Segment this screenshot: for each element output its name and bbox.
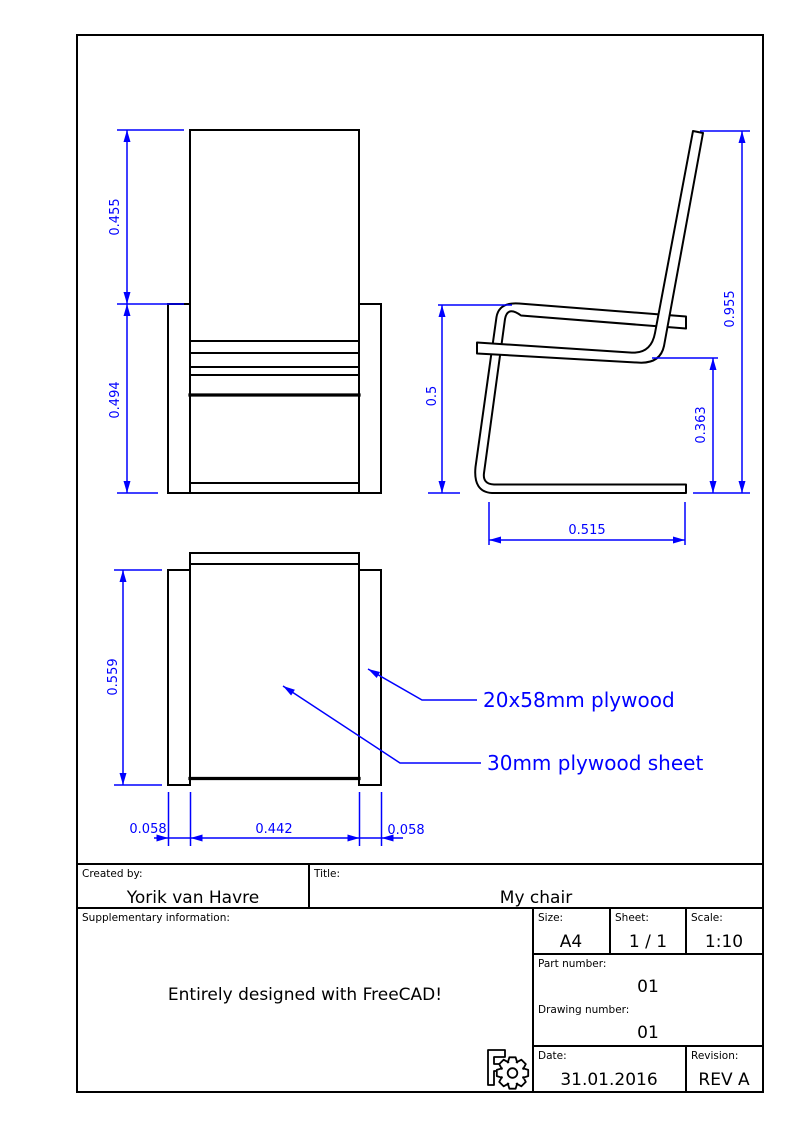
frame-material-label: 20x58mm plywood [483, 688, 675, 712]
drawing-number-value: 01 [637, 1023, 659, 1043]
sheet-label: Sheet: [615, 912, 649, 924]
dim-left-strip-width: 0.058 [129, 822, 166, 837]
side-view [475, 131, 703, 493]
dim-right-strip-width: 0.058 [387, 823, 424, 838]
supplementary-label: Supplementary information: [82, 912, 230, 924]
revision-value: REV A [698, 1070, 750, 1090]
seat-material-label: 30mm plywood sheet [487, 751, 703, 775]
drawing-number-label: Drawing number: [538, 1004, 629, 1016]
size-value: A4 [560, 932, 582, 952]
part-number-label: Part number: [538, 958, 606, 970]
side-view-dimensions: 0.5 0.955 0.363 0.515 [425, 131, 750, 545]
dim-seat-width: 0.442 [255, 822, 292, 837]
dim-frame-height: 0.494 [108, 381, 123, 418]
dim-backrest-height: 0.455 [108, 198, 123, 235]
size-label: Size: [538, 912, 563, 924]
title-label: Title: [313, 868, 340, 880]
created-by-value: Yorik van Havre [126, 888, 259, 908]
dim-under-seat-height: 0.363 [694, 406, 709, 443]
dim-overall-height: 0.955 [723, 290, 738, 327]
front-view [168, 130, 381, 493]
scale-value: 1:10 [705, 932, 743, 952]
top-view-dimensions: 0.559 0.058 0.442 0.058 [106, 570, 425, 846]
drawing-sheet: 0.455 0.494 0.5 0.955 0.363 [0, 0, 800, 1131]
drawing-title: My chair [500, 888, 572, 908]
created-by-label: Created by: [82, 868, 143, 880]
freecad-gear-logo-icon [488, 1050, 528, 1089]
sheet-value: 1 / 1 [629, 932, 667, 952]
part-number-value: 01 [637, 977, 659, 997]
title-block: Created by: Yorik van Havre Title: My ch… [77, 864, 763, 1092]
dim-base-depth: 0.515 [568, 523, 605, 538]
drawing-canvas: 0.455 0.494 0.5 0.955 0.363 [0, 0, 800, 1131]
date-label: Date: [538, 1050, 567, 1062]
supplementary-text: Entirely designed with FreeCAD! [168, 985, 442, 1005]
scale-label: Scale: [691, 912, 723, 924]
front-view-dimensions: 0.455 0.494 [108, 130, 184, 493]
top-view [168, 553, 381, 785]
date-value: 31.01.2016 [560, 1070, 657, 1090]
revision-label: Revision: [691, 1050, 738, 1062]
dim-depth: 0.559 [106, 658, 121, 695]
material-annotations: 20x58mm plywood 30mm plywood sheet [283, 669, 703, 775]
dim-seat-height: 0.5 [425, 386, 440, 407]
